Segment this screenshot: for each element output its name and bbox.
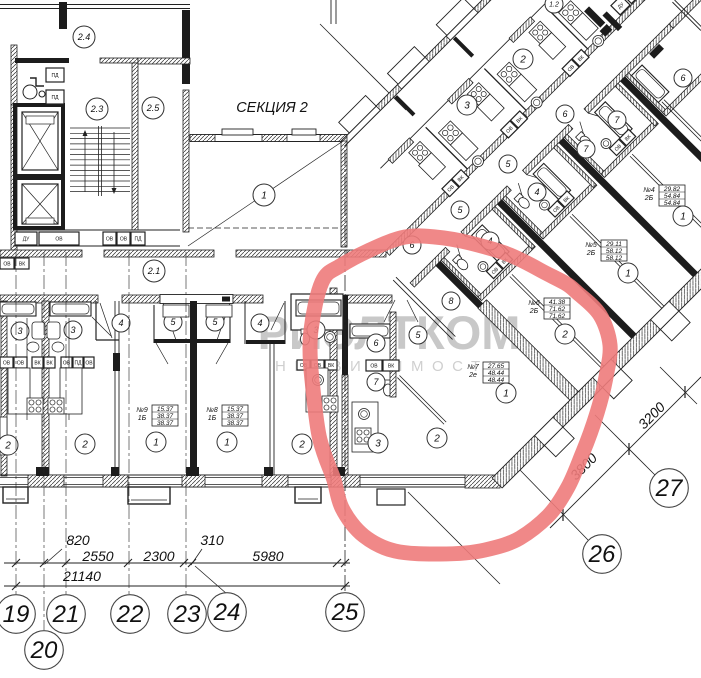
- svg-text:48.44: 48.44: [488, 370, 505, 377]
- svg-text:2550: 2550: [81, 548, 113, 564]
- svg-text:4: 4: [118, 318, 123, 328]
- svg-text:2Б: 2Б: [529, 308, 539, 315]
- svg-text:ВК: ВК: [19, 262, 25, 268]
- svg-text:1: 1: [224, 438, 230, 449]
- svg-text:24: 24: [213, 599, 241, 626]
- svg-text:1: 1: [153, 438, 159, 449]
- svg-text:2300: 2300: [142, 548, 174, 564]
- svg-text:21140: 21140: [62, 568, 101, 584]
- svg-text:15.37: 15.37: [227, 406, 244, 413]
- svg-text:2: 2: [519, 55, 526, 66]
- svg-text:4: 4: [534, 187, 539, 197]
- svg-text:ОВ: ОВ: [3, 361, 11, 367]
- svg-text:№6: №6: [528, 300, 540, 307]
- svg-text:5980: 5980: [252, 548, 283, 564]
- svg-text:№8: №8: [206, 407, 218, 414]
- svg-text:№4: №4: [643, 187, 655, 194]
- svg-text:1: 1: [625, 269, 631, 280]
- svg-text:38.37: 38.37: [227, 420, 244, 427]
- svg-text:ОВ: ОВ: [17, 361, 25, 367]
- svg-text:№9: №9: [136, 407, 148, 414]
- svg-text:№5: №5: [585, 242, 597, 249]
- svg-text:1Б: 1Б: [138, 415, 147, 422]
- svg-text:54.84: 54.84: [664, 193, 681, 200]
- svg-text:27.65: 27.65: [487, 363, 505, 370]
- svg-text:ВК: ВК: [388, 364, 394, 370]
- svg-text:ОВ: ОВ: [120, 237, 128, 243]
- svg-text:1: 1: [680, 212, 686, 223]
- svg-text:1: 1: [261, 191, 267, 202]
- svg-text:48.44: 48.44: [488, 377, 505, 384]
- svg-text:2е: 2е: [468, 372, 477, 379]
- svg-text:ОВ: ОВ: [85, 361, 93, 367]
- svg-text:8: 8: [448, 296, 453, 306]
- svg-text:15.37: 15.37: [157, 406, 174, 413]
- svg-text:310: 310: [200, 532, 224, 548]
- svg-text:26: 26: [588, 541, 616, 568]
- svg-text:3: 3: [70, 325, 75, 335]
- svg-text:2: 2: [4, 441, 11, 452]
- svg-text:2: 2: [298, 440, 305, 451]
- svg-text:2.1: 2.1: [147, 266, 161, 276]
- svg-text:ВК: ВК: [328, 363, 334, 369]
- svg-text:2Б: 2Б: [586, 250, 596, 257]
- svg-text:23: 23: [173, 601, 201, 628]
- svg-text:2: 2: [561, 330, 568, 341]
- svg-text:25: 25: [331, 599, 359, 626]
- svg-text:1.2: 1.2: [549, 2, 559, 9]
- svg-text:1Б: 1Б: [208, 415, 217, 422]
- svg-text:ОВ: ОВ: [370, 364, 378, 370]
- svg-text:ОВ: ОВ: [55, 237, 63, 243]
- svg-text:2.4: 2.4: [77, 32, 91, 42]
- svg-text:2: 2: [81, 440, 88, 451]
- svg-text:ДУ: ДУ: [23, 237, 30, 243]
- svg-text:21: 21: [52, 601, 80, 628]
- svg-text:ПД: ПД: [75, 361, 83, 367]
- svg-text:ВК: ВК: [34, 361, 40, 367]
- svg-text:6: 6: [373, 338, 378, 348]
- svg-text:2.5: 2.5: [146, 103, 161, 113]
- svg-text:29.82: 29.82: [663, 186, 681, 193]
- svg-text:№7: №7: [467, 364, 480, 371]
- svg-text:27: 27: [655, 475, 684, 502]
- svg-text:820: 820: [66, 532, 90, 548]
- svg-text:3: 3: [17, 326, 22, 336]
- svg-text:2: 2: [433, 434, 440, 445]
- svg-text:3: 3: [464, 101, 470, 112]
- svg-text:ОВ: ОВ: [3, 262, 11, 268]
- svg-text:4: 4: [257, 318, 262, 328]
- svg-text:6: 6: [680, 73, 685, 83]
- svg-text:20: 20: [30, 637, 58, 664]
- svg-text:ВК: ВК: [46, 361, 52, 367]
- svg-text:6: 6: [562, 109, 567, 119]
- svg-text:ПД: ПД: [52, 95, 60, 101]
- svg-text:2.3: 2.3: [90, 104, 104, 114]
- svg-text:38.37: 38.37: [157, 420, 174, 427]
- svg-text:ОВ: ОВ: [63, 361, 71, 367]
- svg-text:2Б: 2Б: [644, 195, 654, 202]
- svg-text:58.12: 58.12: [606, 248, 623, 255]
- svg-text:ПД: ПД: [52, 73, 60, 79]
- svg-text:ПД: ПД: [135, 237, 143, 243]
- svg-text:38.37: 38.37: [157, 413, 174, 420]
- svg-text:38.37: 38.37: [227, 413, 244, 420]
- svg-text:1: 1: [503, 389, 509, 400]
- svg-text:22: 22: [116, 601, 144, 628]
- svg-text:54.84: 54.84: [664, 200, 681, 207]
- svg-text:СЕКЦИЯ 2: СЕКЦИЯ 2: [236, 100, 308, 116]
- svg-text:41.38: 41.38: [549, 299, 566, 306]
- svg-text:3: 3: [375, 439, 381, 450]
- svg-text:58.12: 58.12: [606, 255, 623, 262]
- svg-text:ОВ: ОВ: [106, 237, 114, 243]
- svg-text:71.62: 71.62: [549, 306, 566, 313]
- svg-text:19: 19: [3, 601, 30, 628]
- svg-text:71.62: 71.62: [549, 313, 566, 320]
- svg-text:29.11: 29.11: [605, 241, 622, 248]
